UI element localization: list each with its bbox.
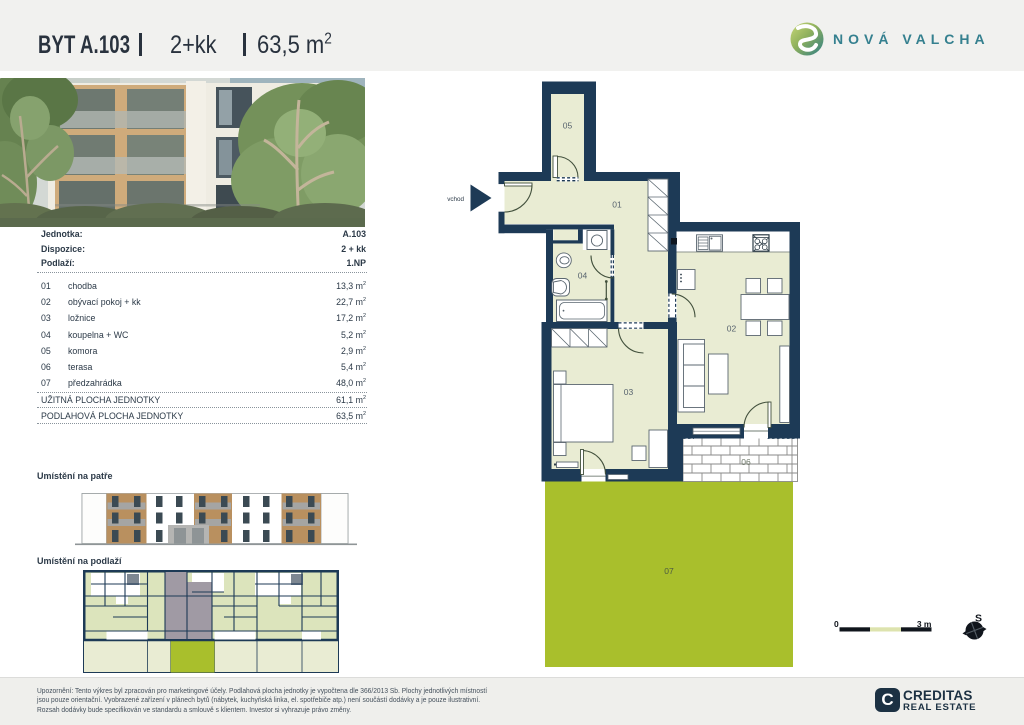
svg-text:01: 01: [612, 200, 622, 210]
svg-text:04: 04: [578, 271, 588, 281]
svg-text:07: 07: [664, 566, 674, 576]
svg-text:05: 05: [563, 121, 573, 131]
svg-text:06: 06: [741, 457, 751, 467]
svg-text:vchod: vchod: [447, 196, 464, 203]
svg-text:3 m: 3 m: [917, 619, 932, 629]
svg-text:02: 02: [727, 324, 737, 334]
svg-text:0: 0: [834, 619, 839, 629]
svg-text:NOVÁ VALCHA: NOVÁ VALCHA: [833, 31, 990, 47]
svg-text:03: 03: [624, 387, 634, 397]
